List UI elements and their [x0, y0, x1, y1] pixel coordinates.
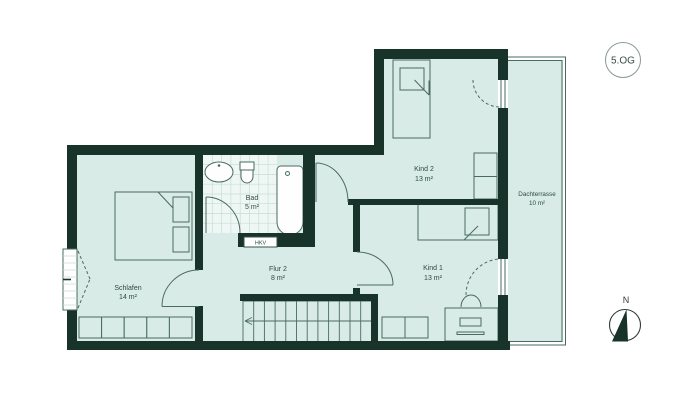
label-kind2-name: Kind 2 [414, 166, 434, 173]
label-kind1-name: Kind 1 [423, 265, 443, 272]
label-dachterrasse-area: 10 m² [529, 200, 545, 207]
label-schlafen-name: Schlafen [114, 285, 141, 292]
sink-tap [218, 164, 221, 167]
label-flur2-area: 8 m² [271, 275, 286, 282]
floor-level-label: 5.OG [611, 56, 635, 67]
bed-pillow [173, 227, 189, 252]
north-label: N [623, 295, 630, 305]
bed-pillow [465, 208, 489, 235]
bathtub [277, 166, 303, 235]
label-kind2-area: 13 m² [415, 176, 434, 183]
label-kind1-area: 13 m² [424, 275, 443, 282]
hkv-label: HKV [255, 241, 267, 247]
cabinet [382, 317, 405, 338]
cabinet [405, 317, 428, 338]
wardrobe-row [79, 317, 192, 338]
label-bad-name: Bad [246, 195, 259, 202]
toilet [240, 162, 254, 183]
label-flur2-name: Flur 2 [269, 266, 287, 273]
bed-pillow [173, 197, 189, 222]
label-bad-area: 5 m² [245, 204, 260, 211]
hkv-distributor: HKV [244, 237, 277, 247]
floorplan-page: HKV Schlafen 14 m² Bad 5 m² Flur 2 8 m² … [0, 0, 686, 400]
desk [445, 308, 498, 341]
compass-north-icon: N [610, 295, 641, 342]
floor-level-badge: 5.OG [606, 43, 641, 78]
label-dachterrasse-name: Dachterrasse [518, 191, 556, 198]
floorplan-drawing: HKV Schlafen 14 m² Bad 5 m² Flur 2 8 m² … [0, 0, 686, 400]
label-schlafen-area: 14 m² [119, 294, 138, 301]
